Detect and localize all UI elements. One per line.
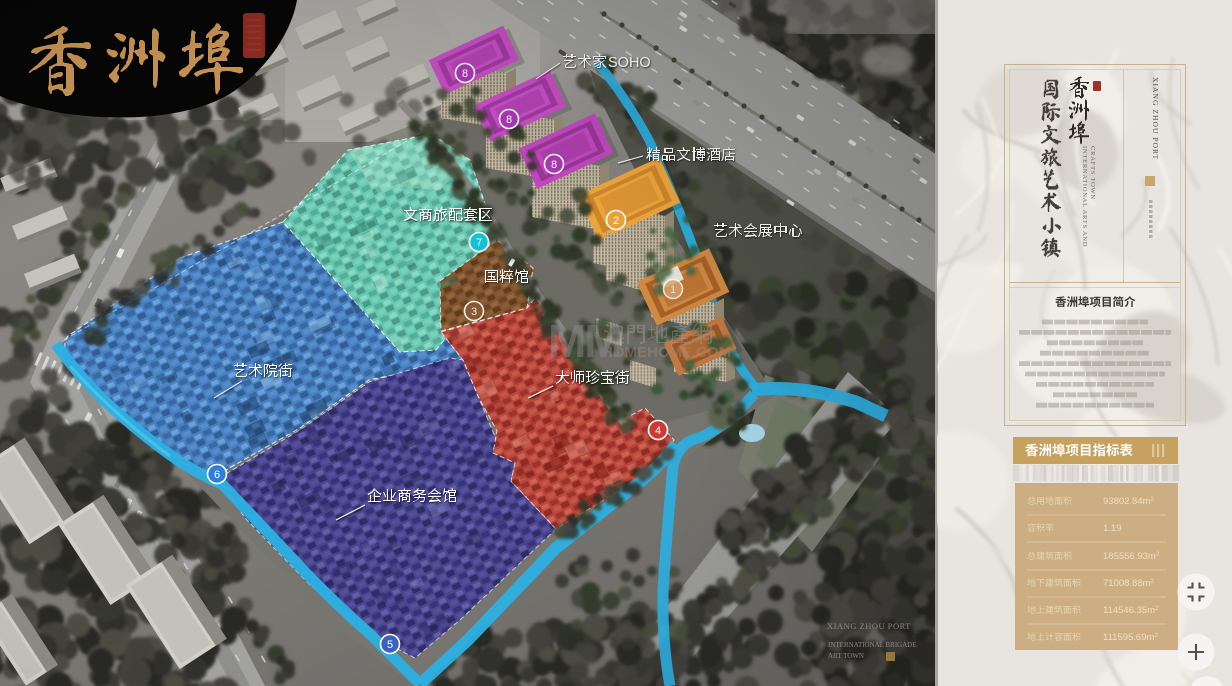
svg-text:CRAFTS TOWN: CRAFTS TOWN (1089, 146, 1096, 200)
svg-text:INTERNATIONAL ARTS AND: INTERNATIONAL ARTS AND (1081, 146, 1088, 247)
svg-text:71008.88m2: 71008.88m2 (1103, 578, 1155, 589)
svg-text:XIANG ZHOU PORT: XIANG ZHOU PORT (1151, 77, 1160, 160)
svg-text:185556.93m2: 185556.93m2 (1103, 551, 1160, 562)
svg-text:1.19: 1.19 (1103, 523, 1122, 534)
svg-text:111595.69m2: 111595.69m2 (1103, 632, 1158, 643)
svg-text:114546.35m2: 114546.35m2 (1103, 605, 1159, 616)
svg-text:93802.84m2: 93802.84m2 (1103, 496, 1155, 507)
